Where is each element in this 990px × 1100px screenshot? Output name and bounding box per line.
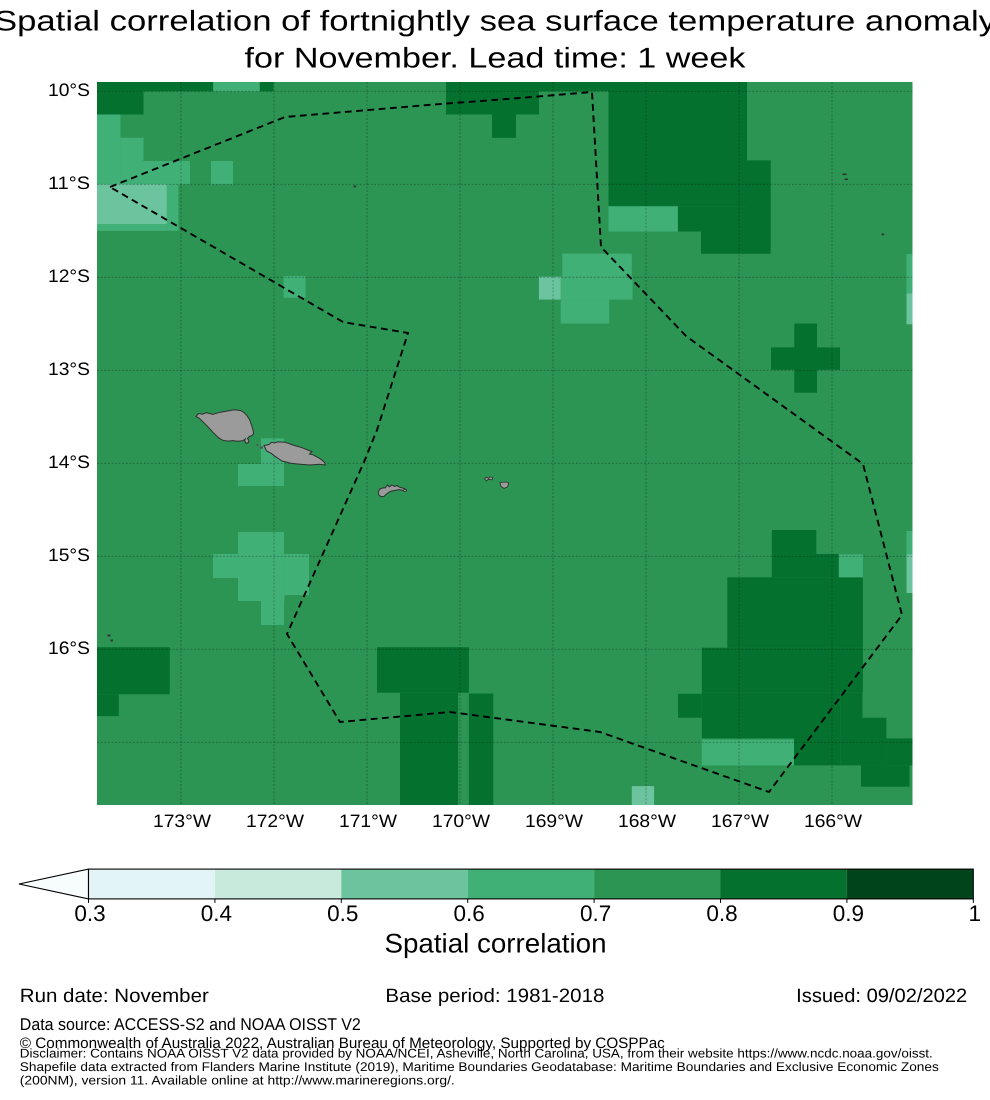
svg-text:167°W: 167°W bbox=[711, 811, 769, 831]
svg-text:0.7: 0.7 bbox=[580, 901, 611, 926]
svg-text:13°S: 13°S bbox=[48, 359, 90, 379]
svg-text:Issued: 09/02/2022: Issued: 09/02/2022 bbox=[796, 986, 967, 1007]
svg-text:0.4: 0.4 bbox=[201, 901, 232, 926]
svg-text:for November. Lead time: 1 wee: for November. Lead time: 1 week bbox=[245, 43, 747, 75]
svg-text:0.5: 0.5 bbox=[327, 901, 358, 926]
svg-text:Shapefile data extracted from: Shapefile data extracted from Flanders M… bbox=[20, 1060, 939, 1074]
svg-text:10°S: 10°S bbox=[48, 80, 90, 100]
svg-text:168°W: 168°W bbox=[618, 811, 676, 831]
svg-text:Data source: ACCESS-S2 and NOA: Data source: ACCESS-S2 and NOAA OISST V2 bbox=[20, 1015, 361, 1034]
svg-text:Run date: November: Run date: November bbox=[20, 986, 210, 1007]
svg-text:169°W: 169°W bbox=[525, 811, 583, 831]
svg-text:Disclaimer: Contains NOAA OISS: Disclaimer: Contains NOAA OISST V2 data … bbox=[20, 1047, 933, 1061]
svg-text:173°W: 173°W bbox=[153, 811, 211, 831]
svg-text:170°W: 170°W bbox=[432, 811, 490, 831]
svg-text:12°S: 12°S bbox=[48, 266, 90, 286]
svg-text:Spatial correlation: Spatial correlation bbox=[385, 929, 607, 959]
svg-text:166°W: 166°W bbox=[804, 811, 862, 831]
svg-text:0.9: 0.9 bbox=[833, 901, 864, 926]
svg-text:171°W: 171°W bbox=[339, 811, 397, 831]
svg-text:14°S: 14°S bbox=[48, 452, 90, 472]
svg-text:172°W: 172°W bbox=[246, 811, 304, 831]
svg-text:0.3: 0.3 bbox=[74, 901, 105, 926]
svg-text:11°S: 11°S bbox=[48, 173, 90, 193]
svg-text:Spatial correlation of fortnig: Spatial correlation of fortnightly sea s… bbox=[0, 5, 990, 37]
svg-text:15°S: 15°S bbox=[48, 545, 90, 565]
svg-text:0.8: 0.8 bbox=[706, 901, 737, 926]
svg-text:Base period: 1981-2018: Base period: 1981-2018 bbox=[385, 986, 604, 1007]
svg-text:16°S: 16°S bbox=[48, 638, 90, 658]
svg-text:0.6: 0.6 bbox=[454, 901, 485, 926]
svg-text:(200NM), version 11. Available: (200NM), version 11. Available online at… bbox=[20, 1074, 455, 1088]
svg-text:1: 1 bbox=[969, 901, 982, 926]
